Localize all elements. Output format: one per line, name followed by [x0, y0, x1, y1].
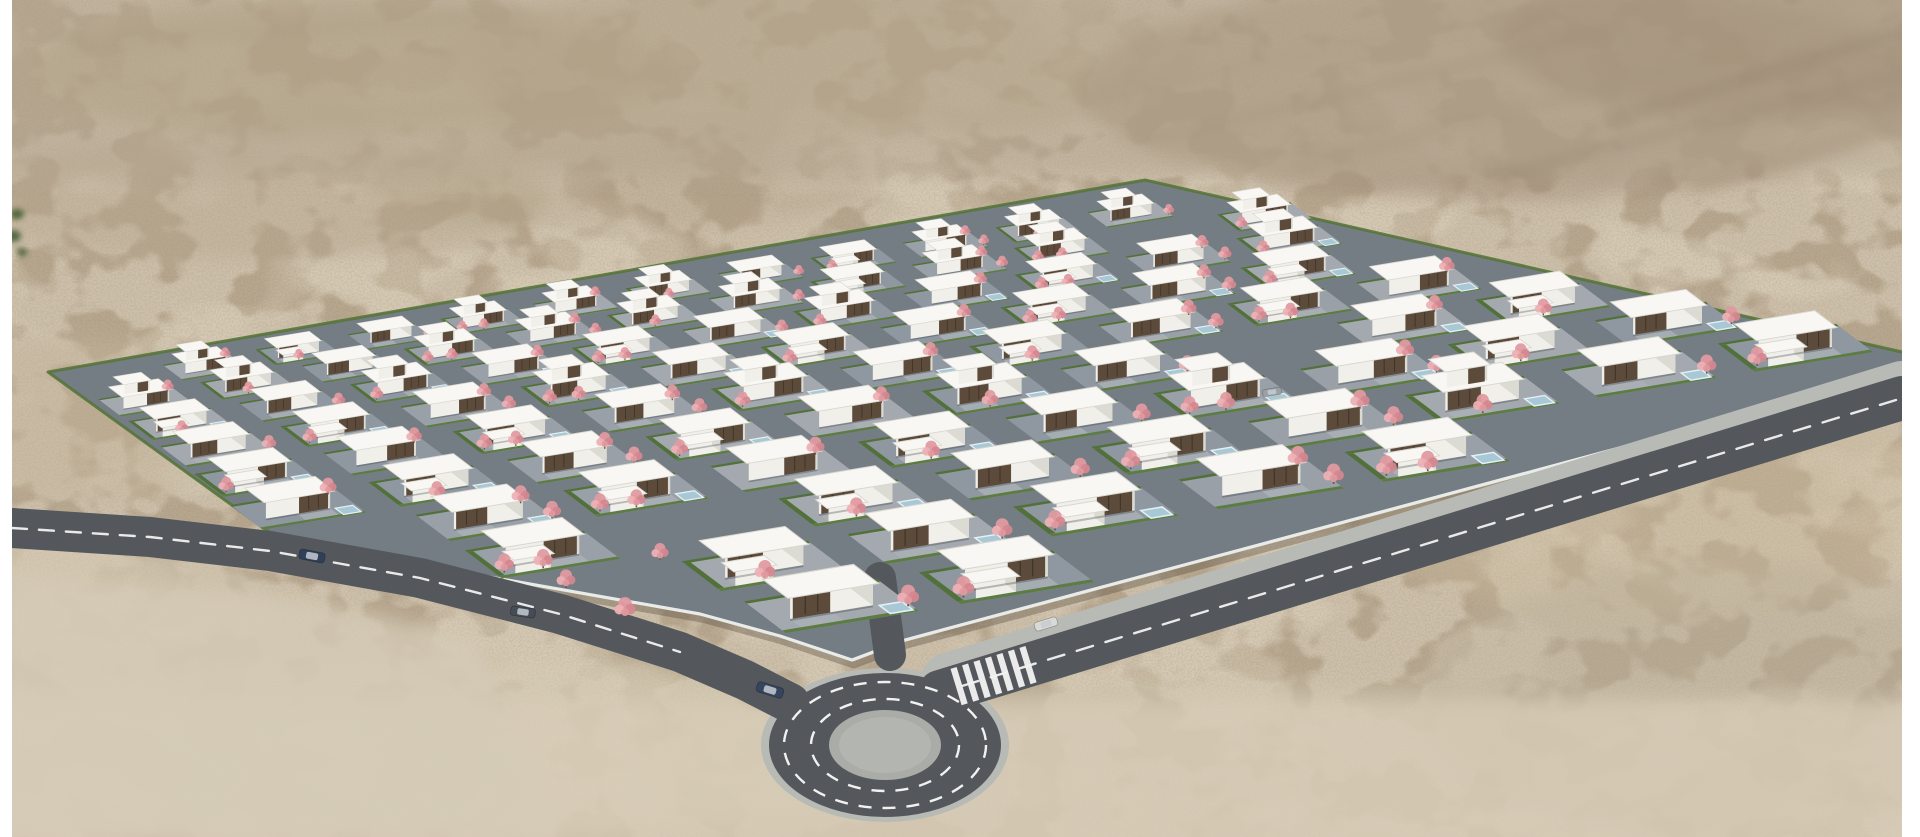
tree-foliage [307, 436, 312, 441]
tree-foliage [1294, 457, 1302, 465]
tree-foliage [928, 350, 934, 356]
tree-foliage [1728, 316, 1735, 323]
tree-foliage [1029, 354, 1035, 360]
tree-foliage [982, 240, 986, 244]
tree-foliage [622, 354, 627, 359]
tree-foliage [1288, 311, 1294, 317]
bush [10, 209, 24, 219]
tree-foliage [1383, 466, 1391, 474]
tree-foliage [426, 357, 430, 361]
tree-foliage [979, 252, 983, 256]
tree-foliage [481, 442, 487, 448]
tree-foliage [1077, 468, 1084, 475]
tree-foliage [621, 608, 629, 616]
tree-foliage [1424, 462, 1432, 470]
tree-foliage [633, 499, 640, 506]
roundabout-island-center [839, 717, 931, 773]
tree-foliage [535, 352, 540, 357]
tree-foliage [411, 436, 417, 442]
architectural-render [0, 0, 1920, 837]
tree-foliage [1056, 314, 1061, 319]
tree-foliage [266, 443, 271, 448]
tree-foliage [374, 394, 379, 399]
tree-foliage [1213, 321, 1219, 327]
tree-foliage [1186, 308, 1192, 314]
tree-foliage [697, 406, 703, 412]
tree-foliage [1222, 253, 1227, 258]
tree-foliage [602, 441, 608, 447]
tree-foliage [576, 393, 581, 398]
tree-foliage [1167, 210, 1171, 214]
tree-foliage [812, 446, 819, 453]
tree-foliage [506, 403, 511, 408]
tree-foliage [325, 487, 331, 493]
tree-foliage [853, 508, 860, 515]
tree-foliage [482, 324, 486, 328]
tree-foliage [517, 495, 524, 502]
tree-foliage [676, 448, 682, 454]
tree-foliage [1444, 265, 1450, 271]
tree-foliage [797, 271, 801, 275]
tree-foliage [597, 503, 604, 510]
tree-foliage [653, 321, 657, 325]
top-blur-band [0, 0, 1920, 175]
tree-foliage [1226, 284, 1231, 289]
tree-foliage [787, 357, 792, 362]
tree-foliage [1754, 357, 1761, 364]
tree-foliage [596, 357, 601, 362]
tree-foliage [998, 529, 1006, 537]
tree-foliage [501, 564, 508, 571]
tree-foliage [878, 395, 884, 401]
tree-foliage [904, 596, 912, 604]
tree-foliage [961, 311, 966, 316]
tree-foliage [1540, 308, 1546, 314]
tree-foliage [978, 279, 983, 284]
tree-foliage [481, 391, 486, 396]
tree-foliage [959, 588, 967, 596]
tree-foliage [1330, 475, 1338, 483]
tree-foliage [540, 559, 547, 566]
tree-foliage [1517, 353, 1524, 360]
tree-foliage [1200, 242, 1205, 247]
tree-foliage [450, 354, 454, 358]
tree-foliage [1390, 416, 1397, 423]
tree-foliage [1239, 223, 1243, 227]
tree-foliage [963, 231, 967, 235]
tree-foliage [987, 399, 993, 405]
tree-foliage [1000, 262, 1004, 266]
right-border [1902, 0, 1920, 837]
tree-foliage [513, 439, 519, 445]
tree-foliage [1201, 272, 1206, 277]
tree-foliage [563, 579, 570, 586]
render-scene [0, 0, 1920, 837]
tree-foliage [1479, 404, 1486, 411]
tree-foliage [928, 450, 935, 457]
tree-foliage [761, 571, 769, 579]
tree-foliage [1356, 400, 1363, 407]
tree-foliage [740, 400, 746, 406]
tree-foliage [1051, 521, 1059, 529]
tree-foliage [1431, 304, 1437, 310]
tree-foliage [1127, 460, 1134, 467]
tree-foliage [223, 353, 227, 357]
tree-foliage [549, 510, 556, 517]
tree-foliage [1223, 402, 1230, 409]
tree-foliage [165, 386, 169, 390]
tree-foliage [631, 455, 637, 461]
tree-foliage [1402, 349, 1409, 356]
tree-foliage [572, 319, 576, 323]
tree-foliage [657, 552, 663, 558]
tree-foliage [1256, 315, 1262, 321]
tree-foliage [796, 296, 800, 300]
bush [17, 248, 27, 256]
tree-foliage [547, 397, 552, 402]
tree-foliage [593, 292, 597, 296]
tree-foliage [246, 388, 250, 392]
left-border [0, 0, 12, 837]
tree-foliage [223, 485, 229, 491]
tree-foliage [669, 393, 675, 399]
tree-foliage [1186, 406, 1193, 413]
tree-foliage [297, 355, 301, 359]
tree-foliage [1703, 365, 1710, 372]
tree-foliage [1138, 413, 1145, 420]
